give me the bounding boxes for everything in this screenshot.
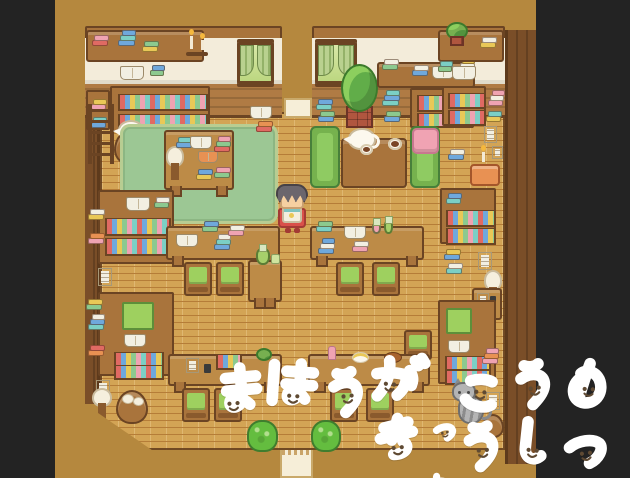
potion-bottle [384, 220, 393, 234]
bookshelf [442, 86, 486, 126]
book-row [446, 210, 496, 227]
pink-blanket [412, 128, 439, 154]
open-book [124, 334, 146, 347]
book-stack [486, 116, 501, 122]
book-stack [214, 172, 230, 178]
book-stack [88, 350, 104, 356]
candle-icon [201, 40, 204, 50]
book-stack [92, 40, 108, 46]
book-stack [446, 198, 461, 204]
logo-char [210, 358, 267, 420]
book-stack [150, 70, 164, 76]
sofa [310, 126, 340, 188]
potion-bottle [256, 248, 270, 265]
green-board [122, 302, 154, 330]
flower-stool [116, 390, 148, 424]
book-stack [86, 304, 102, 310]
book-stack [382, 100, 399, 106]
book-stack [438, 66, 452, 72]
green-board [446, 308, 472, 334]
logo-line-2: きょうしつ [368, 412, 608, 474]
open-book [126, 197, 150, 211]
book-row [446, 228, 496, 245]
open-book [176, 234, 198, 247]
logo-line-2-glyphs [368, 412, 608, 474]
book-stack [88, 324, 104, 330]
logo-line-1-glyphs [212, 354, 608, 416]
book-row [105, 218, 171, 236]
candle-icon [482, 152, 485, 162]
open-book-orange [198, 151, 218, 163]
teacup [388, 138, 402, 150]
logo-char [366, 350, 423, 412]
paper-note [186, 358, 199, 373]
logo-char [554, 417, 613, 478]
candles [186, 30, 210, 60]
book-stack [318, 248, 334, 254]
book-stack [448, 154, 464, 160]
book-row [448, 93, 486, 109]
book-stack [88, 214, 104, 220]
paper-note [98, 268, 112, 286]
stove [470, 164, 500, 186]
book-stack [318, 116, 334, 122]
book-stack [118, 40, 135, 46]
bush [247, 420, 278, 452]
character-shoe [294, 228, 300, 233]
candle-base [186, 52, 208, 56]
entrance-mat [280, 450, 313, 478]
logo-char [450, 416, 506, 477]
book-stack [480, 42, 496, 48]
book-stack [214, 244, 230, 250]
book-stack [228, 230, 244, 236]
open-book [190, 136, 212, 149]
chair [184, 262, 212, 296]
character-head [280, 194, 304, 209]
open-book [452, 66, 476, 80]
potion-bottle [372, 222, 381, 234]
chair [372, 262, 400, 296]
paper-note [492, 146, 503, 159]
logo-char [416, 463, 451, 478]
book-stack [488, 100, 503, 106]
bush [311, 420, 341, 452]
logo-char [365, 409, 423, 472]
teacup [360, 144, 373, 155]
logo-char [555, 353, 610, 414]
game-viewport[interactable]: まほうがっこうの きょうしつ [0, 0, 630, 478]
character-shoe [285, 228, 291, 233]
chair [182, 388, 210, 422]
book-stack [446, 268, 462, 274]
open-book [120, 66, 144, 80]
flower-icon [133, 397, 144, 406]
logo-char [262, 352, 318, 413]
bookshelf [440, 188, 496, 244]
book-stack [88, 238, 104, 244]
book-row [114, 365, 164, 380]
paper-note [478, 252, 492, 270]
plant-pot-base [450, 36, 464, 46]
top-doorway-threshold [284, 98, 312, 118]
window-curtains-1 [237, 42, 274, 84]
tree [341, 64, 378, 112]
paper-note [484, 126, 497, 143]
candle-icon [190, 36, 193, 49]
book-stack [412, 70, 428, 76]
book-stack [352, 246, 368, 252]
open-book [250, 106, 272, 119]
book-stack [202, 226, 218, 232]
book-stack [316, 104, 332, 110]
chair [216, 262, 244, 296]
desk-lamp [166, 146, 184, 176]
book-stack [382, 64, 398, 70]
book-row [448, 110, 486, 126]
side-table [248, 260, 282, 302]
book-row [118, 94, 208, 111]
book-stack [444, 254, 460, 260]
book-stack [214, 146, 230, 152]
logo-char [314, 361, 372, 424]
book-stack [316, 226, 332, 232]
book-stack [384, 116, 400, 122]
book-row [105, 238, 171, 256]
ladder [88, 104, 114, 164]
book-stack [142, 46, 158, 52]
logo-char [501, 353, 559, 416]
open-book [448, 340, 470, 353]
logo-char [501, 411, 559, 474]
book-stack [196, 174, 212, 180]
potion-glass [271, 254, 280, 264]
book-stack [154, 202, 169, 208]
chair [336, 262, 364, 296]
bookshelf [98, 292, 174, 376]
bookshelf [98, 190, 174, 264]
book-stack [256, 126, 272, 132]
player-character [276, 184, 308, 240]
open-book [344, 226, 366, 239]
logo-line-1: まほうがっこうの [212, 354, 608, 416]
